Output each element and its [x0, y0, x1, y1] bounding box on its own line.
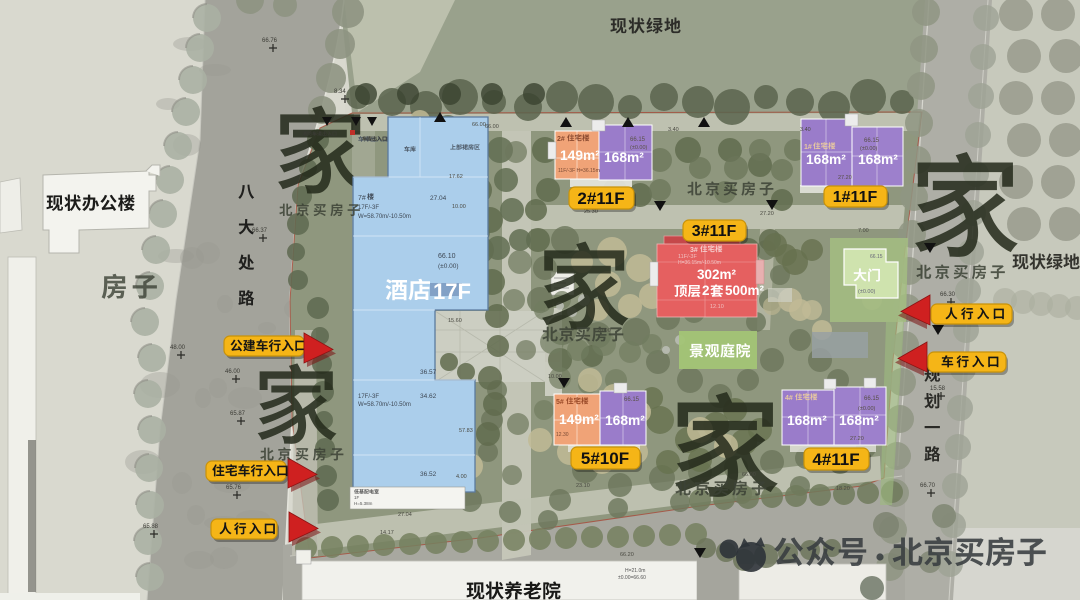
svg-text:5#10F: 5#10F: [581, 449, 629, 468]
svg-text:11F/-3F H=36.15m: 11F/-3F H=36.15m: [558, 168, 600, 174]
svg-text:12.30: 12.30: [556, 432, 569, 438]
svg-text:168m²: 168m²: [858, 152, 898, 167]
svg-text:3#: 3#: [690, 247, 698, 254]
svg-text:(±0.00): (±0.00): [858, 289, 876, 295]
svg-text:57.83: 57.83: [459, 428, 473, 434]
svg-text:66.20: 66.20: [620, 552, 634, 558]
svg-text:168m²: 168m²: [806, 152, 846, 167]
svg-text:8.34: 8.34: [334, 89, 346, 95]
svg-text:(±0.00): (±0.00): [630, 145, 648, 151]
svg-text:18.20: 18.20: [836, 486, 850, 492]
svg-text:2#: 2#: [557, 136, 565, 143]
svg-text:14.17: 14.17: [380, 530, 394, 536]
svg-text:66.15: 66.15: [864, 396, 880, 402]
svg-text:66.15: 66.15: [870, 254, 883, 260]
svg-text:(±0.00): (±0.00): [858, 406, 876, 412]
svg-text:4.00: 4.00: [456, 474, 467, 480]
svg-text:10.00: 10.00: [452, 204, 466, 210]
svg-text:H=5.38m: H=5.38m: [354, 501, 373, 506]
svg-text:302m²: 302m²: [697, 267, 737, 282]
svg-text:3#11F: 3#11F: [692, 223, 737, 240]
svg-text:66.10: 66.10: [438, 253, 456, 260]
svg-text:4#11F: 4#11F: [812, 450, 859, 469]
svg-text:65.76: 65.76: [226, 485, 242, 491]
svg-text:12.10: 12.10: [710, 304, 724, 310]
svg-text:149m²: 149m²: [559, 412, 599, 427]
svg-text:17F: 17F: [433, 279, 471, 304]
svg-text:2#11F: 2#11F: [577, 189, 624, 208]
svg-text:27.20: 27.20: [838, 175, 852, 181]
svg-text:65.88: 65.88: [143, 524, 159, 530]
svg-text:168m²: 168m²: [787, 413, 827, 428]
svg-text:27.04: 27.04: [398, 512, 412, 518]
svg-text:46.00: 46.00: [225, 369, 241, 375]
svg-text:(±0.00): (±0.00): [438, 263, 459, 270]
svg-text:4#: 4#: [785, 395, 793, 402]
svg-text:168m²: 168m²: [604, 150, 644, 165]
svg-text:36.52: 36.52: [420, 471, 437, 478]
svg-text:H=21.0m: H=21.0m: [625, 568, 645, 574]
svg-text:66.15: 66.15: [864, 138, 880, 144]
svg-text:2: 2: [702, 283, 710, 298]
svg-text:36.57: 36.57: [420, 369, 437, 376]
svg-text:W=58.70m/-10.50m: W=58.70m/-10.50m: [358, 402, 411, 408]
svg-text:23.10: 23.10: [576, 483, 590, 489]
svg-text:48.00: 48.00: [170, 345, 186, 351]
svg-text:3.40: 3.40: [800, 127, 811, 133]
svg-text:34.62: 34.62: [420, 393, 437, 400]
svg-text:3.40: 3.40: [668, 127, 679, 133]
svg-text:27.04: 27.04: [430, 195, 447, 202]
svg-text:168m²: 168m²: [839, 413, 879, 428]
svg-text:66.00: 66.00: [742, 472, 756, 478]
svg-text:500m²: 500m²: [725, 283, 765, 298]
svg-text:1F: 1F: [354, 495, 360, 500]
svg-text:17F/-3F: 17F/-3F: [358, 394, 379, 400]
svg-text:149m²: 149m²: [560, 148, 600, 163]
svg-text:W=58.70m/-10.50m: W=58.70m/-10.50m: [358, 214, 411, 220]
svg-text:15.58: 15.58: [930, 386, 946, 392]
svg-text:15.60: 15.60: [448, 318, 462, 324]
svg-text:66.37: 66.37: [252, 228, 268, 234]
svg-text:(±0.00): (±0.00): [860, 146, 878, 152]
svg-text:66.15: 66.15: [624, 397, 640, 403]
svg-text:168m²: 168m²: [605, 413, 645, 428]
svg-text:1#11F: 1#11F: [833, 189, 878, 206]
svg-text:17F/-3F: 17F/-3F: [358, 205, 379, 211]
svg-text:7.00: 7.00: [858, 228, 869, 234]
svg-text:66.15: 66.15: [630, 137, 646, 143]
svg-text:H=36.15m/-10.50m: H=36.15m/-10.50m: [678, 260, 721, 266]
svg-text:1#: 1#: [804, 144, 812, 151]
svg-text:17.62: 17.62: [449, 174, 463, 180]
svg-text:5#: 5#: [556, 399, 564, 406]
svg-text:±0.00=66.60: ±0.00=66.60: [618, 575, 646, 581]
svg-text:66.00: 66.00: [472, 122, 486, 128]
svg-text:7#: 7#: [358, 195, 366, 202]
svg-text:66.30: 66.30: [940, 292, 956, 298]
svg-text:66.76: 66.76: [262, 38, 278, 44]
svg-text:66.70: 66.70: [920, 483, 936, 489]
svg-text:27.20: 27.20: [850, 436, 864, 442]
svg-text:66.00: 66.00: [485, 124, 499, 130]
svg-text:65.87: 65.87: [230, 411, 246, 417]
svg-text:27.20: 27.20: [760, 211, 774, 217]
